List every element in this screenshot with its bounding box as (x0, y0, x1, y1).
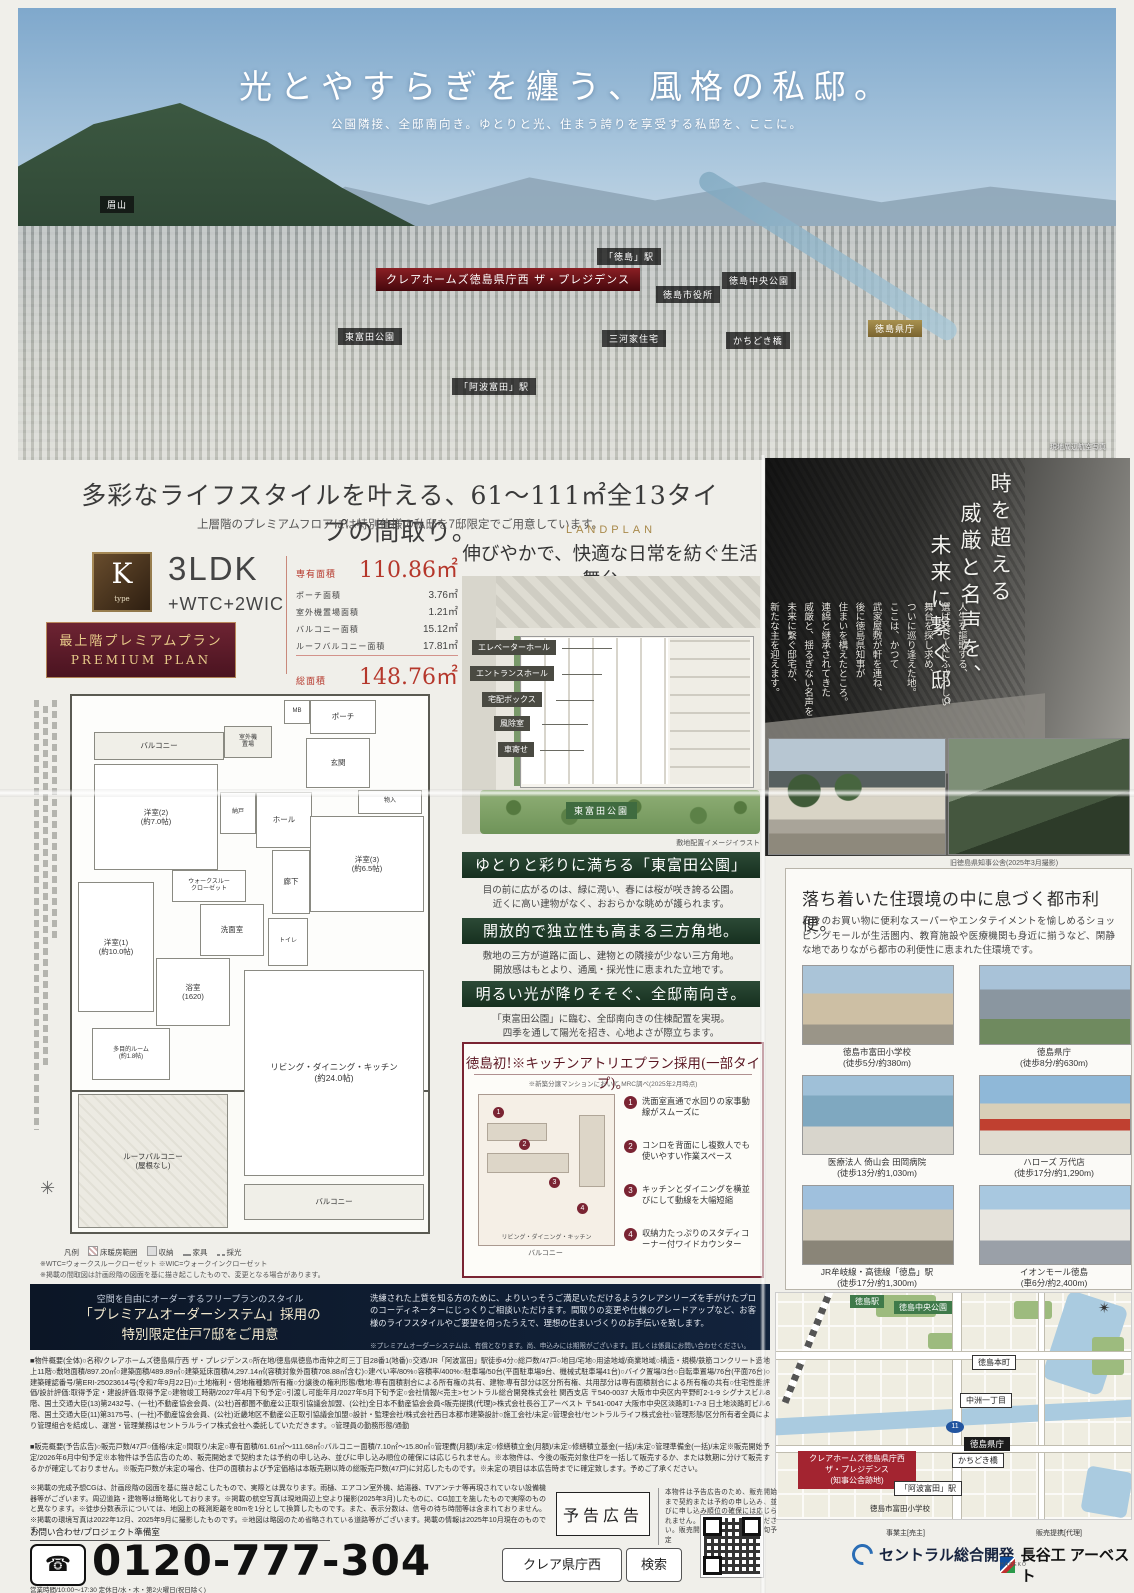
preview-ad-box: 予告広告 (556, 1492, 650, 1536)
qr-code (700, 1514, 764, 1578)
ktype-layout-sub: +WTC+2WIC (168, 594, 284, 615)
hero-label-bizan: 眉山 (100, 196, 134, 213)
haseko-wordmark: HASEKO (1000, 1562, 1027, 1568)
item-text: コンロを背面にし複数人でも使いやすい作業スペース (642, 1140, 754, 1162)
room-hall: ホール (256, 792, 312, 848)
kitchen-point-3: 3 (549, 1177, 560, 1188)
kitchen-cabinet (579, 1115, 605, 1187)
search-button: 検索 (626, 1548, 682, 1582)
map-label-school: 徳島市富田小学校 (870, 1503, 930, 1514)
spec-label: ルーフバルコニー面積 (296, 641, 385, 652)
kitchen-item-4: 4 収納力たっぷりのスタディコーナー付ワイドカウンター (624, 1228, 754, 1250)
premium-plan-en: PREMIUM PLAN (46, 653, 236, 667)
hero-caption: 現地周辺航空写真 (1050, 442, 1106, 452)
landplan-tag: LANDPLAN (462, 524, 760, 536)
room-toilet: トイレ (268, 918, 308, 966)
map-road-vertical-2 (1038, 1293, 1045, 1519)
label-elevator-hall: エレベーターホール (472, 640, 556, 655)
owner-logo-row: セントラル総合開発 (852, 1544, 1014, 1565)
spec-label: ポーチ面積 (296, 590, 341, 601)
facility-caption: 徳島県庁(徒歩8分/約630m) (979, 1047, 1129, 1069)
leader-line (542, 724, 588, 725)
facility-caption: JR牟岐線・高徳線「徳島」駅(徒歩17分/約1,300m) (802, 1267, 952, 1289)
spec-label: 総面積 (296, 674, 326, 687)
plan-side-text-column (52, 700, 57, 940)
item-text: 収納力たっぷりのスタディコーナー付ワイドカウンター (642, 1228, 754, 1250)
spec-value: 17.81㎡ (423, 637, 458, 652)
spec-divider (286, 556, 287, 674)
map-label-central-park: 徳島中央公園 (894, 1301, 952, 1314)
map-main-road-horizontal (776, 1351, 1131, 1360)
legend-daylight: 採光 (217, 1247, 242, 1258)
room-roof-balcony: ルーフバルコニー (屋根なし) (78, 1094, 228, 1228)
room-balcony-bottom: バルコニー (244, 1184, 424, 1220)
spec-value: 110.86㎡ (359, 552, 458, 584)
feature-bar-1: ゆとりと彩りに満ちる「東富田公園」前。 (462, 852, 760, 878)
map-label-nakasu: 中洲一丁目 (960, 1393, 1012, 1408)
facility-caption: ハローズ 万代店(徒歩17分/約1,290m) (979, 1157, 1129, 1179)
map-label-awatomita: 「阿波富田」駅 (894, 1481, 962, 1496)
spec-value: 3.76㎡ (429, 586, 458, 601)
premium-order-title: 「プレミアムオーダーシステム」採用の 特別限定住戸7邸をご用意 (50, 1306, 350, 1345)
map-label-kencho: 徳島県庁 (964, 1437, 1010, 1451)
room-entrance: 玄関 (306, 738, 370, 788)
heritage-photo-block: 時を超える 威厳と名声を、 未来に繋ぐ邸。 人生を謳歌する、 選ばれし人にふさわ… (765, 458, 1130, 856)
kitchen-plan: 1 2 3 4 リビング・ダイニング・キッチン (478, 1094, 615, 1246)
hero-label-kachidoki-bridge: かちどき橋 (726, 332, 790, 349)
hero-label-city-hall: 徳島市役所 (656, 286, 720, 303)
cityscape-texture (18, 226, 1116, 460)
item-number: 1 (624, 1096, 637, 1109)
site-park-label: 東富田公園 (566, 802, 637, 819)
room-storage: 納戸 (220, 792, 256, 834)
kitchen-ldk-label: リビング・ダイニング・キッチン (479, 1232, 614, 1241)
premium-order-band: 空間を自由にオーダーするフリープランのスタイル 「プレミアムオーダーシステム」採… (30, 1284, 770, 1350)
item-number: 3 (624, 1184, 637, 1197)
spec-list: 専有面積110.86㎡ ポーチ面積3.76㎡ 室外機置場面積1.21㎡ バルコニ… (296, 552, 458, 693)
ktype-badge: K type (92, 552, 152, 612)
far-mountains (278, 136, 1116, 228)
sales-role-label: 販売提携[代理] (1036, 1528, 1082, 1538)
kitchen-item-3: 3 キッチンとダイニングを横並びにして動線を大幅短縮 (624, 1184, 754, 1206)
area-map: 徳島駅 徳島中央公園 徳島本町 中洲一丁目 11 徳島県庁 かちどき橋 クレアホ… (775, 1292, 1132, 1520)
premium-plan-jp: 最上階プレミアムプラン (46, 630, 236, 649)
label-entrance-hall: エントランスホール (470, 666, 554, 681)
label-windbreak-room: 風除室 (494, 716, 530, 731)
business-hours: 営業時間/10:00〜17:30 定休日/水・木・第2火曜日(祝日除く) (30, 1584, 206, 1593)
feature-body-1: 目の前に広がるのは、緑に潤い、春には桜が咲き誇る公園。 近くに高い建物がなく、お… (455, 884, 767, 913)
hero-label-mikawake-house: 三河家住宅 (602, 330, 666, 347)
urban-body: 日々のお買い物に便利なスーパーやエンタテイメントを愉しめるショッピングモールが生… (802, 915, 1115, 959)
spec-value: 148.76㎡ (359, 659, 458, 691)
legend-title: 凡例 (64, 1247, 79, 1258)
map-label-tokushima-station: 徳島駅 (850, 1295, 884, 1308)
urban-box: 落ち着いた住環境の中に息づく都市利便。 日々のお買い物に便利なスーパーやエンタテ… (785, 868, 1132, 1290)
map-park-green (1014, 1301, 1052, 1319)
map-label-honcho: 徳島本町 (972, 1355, 1016, 1370)
spec-label: 室外機置場面積 (296, 607, 359, 618)
label-drive-up: 車寄せ (498, 742, 534, 757)
item-text: 洗面室直通で水回りの家事動線がスムーズに (642, 1096, 754, 1118)
room-balcony-top: バルコニー (94, 732, 224, 760)
room-bedroom2: 洋室(2) (約7.0帖) (94, 764, 218, 870)
hero-title: 光とやすらぎを纏う、風格の私邸。 (18, 60, 1116, 108)
facility-photo-station (802, 1185, 954, 1265)
heritage-photo-left (768, 738, 946, 855)
map-water-2 (1080, 1465, 1132, 1518)
owner-role-label: 事業主[売主] (886, 1528, 925, 1538)
site-units (522, 638, 668, 784)
hero-label-central-park: 徳島中央公園 (722, 272, 796, 289)
siteplan-caption: 敷地配置イメージイラスト (620, 838, 760, 848)
site-road-top (496, 576, 760, 628)
ktype-letter: K (92, 552, 152, 596)
label-delivery-box: 宅配ボックス (482, 692, 542, 707)
phone-icon: ☎ (30, 1544, 86, 1586)
property-outline: ■物件概要(全体)○名称/クレアホームズ徳島県庁西 ザ・プレジデンス○所在地/徳… (30, 1356, 770, 1432)
premium-plan-banner: 最上階プレミアムプラン PREMIUM PLAN (46, 622, 236, 678)
item-text: キッチンとダイニングを横並びにして動線を大幅短縮 (642, 1184, 754, 1206)
legend-floor-heating: 床暖房範囲 (88, 1246, 138, 1258)
premium-order-lead: 空間を自由にオーダーするフリープランのスタイル (50, 1292, 350, 1305)
leader-line (556, 700, 594, 701)
owner-name: セントラル総合開発 (879, 1544, 1014, 1565)
facility-caption: 徳島市富田小学校(徒歩5分/約380m) (802, 1047, 952, 1069)
room-outdoor-unit: 室外機 置場 (224, 726, 272, 758)
room-washroom: 洗面室 (200, 904, 264, 956)
site-parking (670, 638, 750, 784)
qr-corner (742, 1517, 761, 1536)
feature-bar-2: 開放的で独立性も高まる三方角地。 (462, 918, 760, 944)
kitchen-item-2: 2 コンロを背面にし複数人でも使いやすい作業スペース (624, 1140, 754, 1162)
hero-label-pref-office: 徳島県庁 (868, 320, 922, 337)
feature-body-2: 敷地の三方が道路に面し、建物との隣接が少ない三方角地。 開放感はもとより、通風・… (455, 950, 767, 979)
facility-photo-mall (979, 1185, 1131, 1265)
kitchen-point-1: 1 (493, 1107, 504, 1118)
sales-name: 長谷工 アーベスト (1021, 1544, 1134, 1586)
leader-line (540, 750, 584, 751)
leader-line (562, 648, 612, 649)
divider (474, 1074, 752, 1075)
ktype-letter-sub: type (92, 596, 152, 602)
legend-furniture: 家具 (183, 1247, 208, 1258)
room-bedroom3: 洋室(3) (約6.5帖) (310, 816, 424, 912)
map-park-green (928, 1333, 954, 1349)
facility-photo-school (802, 965, 954, 1045)
floor-plan: ポーチ MB バルコニー 室外機 置場 洋室(2) (約7.0帖) 玄関 ホール… (58, 692, 448, 1237)
sales-outline: ■販売概要(予告広告)○販売戸数/47戸○価格/未定○間取り/未定○専有面積/6… (30, 1442, 770, 1474)
aerial-photo: 光とやすらぎを纏う、風格の私邸。 公園隣接、全邸南向き。ゆとりと光、住まう誇りを… (18, 8, 1116, 460)
kitchen-point-4: 4 (577, 1203, 588, 1214)
room-ldk: リビング・ダイニング・キッチン (約24.0帖) (244, 970, 424, 1176)
item-number: 2 (624, 1140, 637, 1153)
plan-legend: 凡例 床暖房範囲 収納 家具 採光 (64, 1246, 242, 1258)
hero-label-higashitomida-park: 東富田公園 (338, 328, 402, 345)
plan-side-text-column (43, 706, 48, 1066)
kitchen-item-1: 1 洗面室直通で水回りの家事動線がスムーズに (624, 1096, 754, 1118)
legend-storage: 収納 (147, 1246, 174, 1258)
kitchen-atelier-box: 徳島初!※キッチンアトリエプラン採用(一部タイプ)。 ※新築分譲マンションにおい… (462, 1042, 764, 1278)
room-bedroom1: 洋室(1) (約10.0帖) (78, 882, 154, 1012)
hero-label-project: クレアホームズ徳島県庁西 ザ・プレジデンス (376, 268, 640, 291)
spec-value: 1.21㎡ (429, 603, 458, 618)
premium-order-note: ※プレミアムオーダーシステムは、有償となります。尚、申込みには期限がございます。… (370, 1340, 760, 1350)
kitchen-point-2: 2 (519, 1139, 530, 1150)
compass-icon: ✳ (40, 1178, 55, 1199)
kitchen-balcony-label: バルコニー (478, 1248, 613, 1258)
room-closet: 物入 (358, 790, 422, 814)
hero-subtitle: 公園隣接、全邸南向き。ゆとりと光、住まう誇りを享受する私邸を、ここに。 (18, 116, 1116, 132)
heritage-photo-right (948, 738, 1130, 855)
facility-caption: 医療法人 倚山会 田岡病院(徒歩13分/約1,030m) (802, 1157, 952, 1179)
north-arrow-icon: ✴ (1098, 1299, 1111, 1317)
feature-body-3: 「東富田公園」に臨む、全邸南向きの住棟配置を実現。 四季を通して陽光を招き、心地… (455, 1013, 767, 1042)
kitchen-note: ※新築分譲マンションにおいて MRC調べ(2025年2月時点) (464, 1078, 762, 1088)
kitchen-counter (487, 1123, 547, 1141)
heritage-body: 人生を謳歌する、 選ばれし人にふさわしい 舞台を探し求め、 ついに巡り逢えた地。… (770, 602, 970, 754)
central-sogo-kaihatsu-logo (848, 1540, 878, 1570)
feature-bar-3: 明るい光が降りそそぐ、全邸南向き。 (462, 981, 760, 1007)
qr-corner (703, 1556, 722, 1575)
facility-caption: イオンモール徳島(車6分/約2,400m) (979, 1267, 1129, 1289)
leader-line (562, 674, 602, 675)
heritage-caption: 旧徳島県知事公舎(2025年3月撮影) (950, 858, 1058, 868)
room-mb: MB (284, 700, 310, 724)
kitchen-island (487, 1153, 569, 1173)
item-number: 4 (624, 1228, 637, 1241)
heritage-line1: 時を超える (985, 472, 1015, 723)
facility-photo-hospital (802, 1075, 954, 1155)
flyer-page: 光とやすらぎを纏う、風格の私邸。 公園隣接、全邸南向き。ゆとりと光、住まう誇りを… (0, 0, 1134, 1593)
facility-photo-supermarket (979, 1075, 1131, 1155)
plan-notes: ※WTC=ウォークスルークローゼット ※WIC=ウォークインクローゼット ※掲載… (40, 1260, 458, 1281)
room-corridor: 廊下 (272, 850, 310, 914)
qr-corner (703, 1517, 722, 1536)
spec-label: 専有面積 (296, 567, 336, 580)
room-porch: ポーチ (310, 700, 376, 734)
search-keyword-box: クレア県庁西 (502, 1548, 622, 1582)
premium-order-body: 洗練された上質を知る方のために、よりいっそうご満足いただけるようクレアシリーズを… (370, 1292, 756, 1329)
room-bath: 浴室 (1620) (156, 958, 230, 1026)
spec-value: 15.12㎡ (423, 620, 458, 635)
phone-number: 0120-777-304 (92, 1536, 431, 1585)
map-label-kachidoki: かちどき橋 (952, 1453, 1004, 1468)
plan-side-text-column (34, 700, 39, 1130)
room-multipurpose: 多目的ルーム (約1.8帖) (92, 1028, 170, 1080)
route-shield-11: 11 (946, 1421, 964, 1433)
ktype-layout: 3LDK (168, 550, 259, 588)
intro-headline: 多彩なライフスタイルを叶える、61〜111㎡全13タイプの間取り。 (70, 476, 730, 548)
facility-photo-prefoffice (979, 965, 1131, 1045)
hero-label-tokushima-station: 「徳島」駅 (597, 248, 661, 265)
spec-label: バルコニー面積 (296, 624, 359, 635)
hero-label-awatomita-station: 「阿波富田」駅 (452, 378, 536, 395)
room-wtc: ウォークスルー クローゼット (172, 870, 246, 902)
